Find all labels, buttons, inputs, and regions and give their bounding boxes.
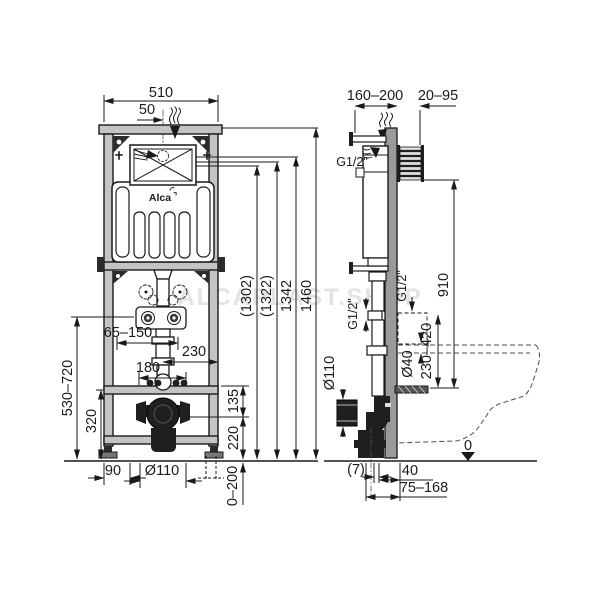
dim-o40: Ø40 bbox=[400, 350, 416, 377]
installation-frame-drawing: ALCAPLAST.SHOP Alca bbox=[0, 0, 600, 600]
pipe-clip bbox=[97, 257, 104, 272]
dim-160-200: 160–200 bbox=[347, 88, 403, 104]
technical-drawing-page: ALCAPLAST.SHOP Alca bbox=[0, 0, 600, 600]
frame-right-post bbox=[209, 134, 218, 446]
dim-50: 50 bbox=[139, 102, 155, 118]
corner-brace bbox=[194, 271, 209, 284]
dim-1322: (1322) bbox=[259, 275, 275, 317]
dim-1342: 1342 bbox=[279, 280, 295, 312]
front-view: Alca bbox=[97, 107, 225, 458]
dim-180: 180 bbox=[136, 360, 160, 376]
dim-1460: 1460 bbox=[299, 280, 315, 312]
dim-g12-right: G1/2" bbox=[395, 270, 409, 302]
alca-logo: Alca bbox=[149, 192, 171, 204]
dim-90: 90 bbox=[105, 463, 121, 479]
frame-mid-rail bbox=[104, 262, 218, 270]
frame-top-rail bbox=[99, 125, 222, 134]
wall-bracket-block bbox=[397, 145, 424, 182]
dim-910: 910 bbox=[436, 273, 452, 297]
dim-20-95: 20–95 bbox=[418, 88, 458, 104]
dim-510: 510 bbox=[149, 85, 173, 101]
dim-g12-top: G1/2" bbox=[336, 155, 368, 169]
dim-zero: 0 bbox=[464, 438, 472, 454]
dim-o110-front: Ø110 bbox=[145, 463, 179, 479]
waste-outlet bbox=[151, 428, 176, 452]
corner-brace bbox=[113, 136, 130, 153]
dim-230: 230 bbox=[182, 344, 206, 360]
dim-230-420: 230–420 bbox=[419, 323, 435, 379]
bowl-bracket bbox=[395, 386, 428, 393]
dim-40: 40 bbox=[402, 463, 418, 479]
corner-brace bbox=[113, 271, 128, 284]
dim-320: 320 bbox=[84, 409, 100, 433]
dim-65-150: 65–150 bbox=[104, 325, 152, 341]
frame-left-post bbox=[104, 134, 113, 446]
dim-0-200: 0–200 bbox=[225, 466, 241, 506]
dim-g12-left: G1/2" bbox=[346, 298, 360, 330]
dim-7: (7) bbox=[347, 462, 365, 478]
water-inlet-icon bbox=[170, 107, 181, 124]
waste-pipe-section bbox=[337, 400, 357, 426]
dim-o110-side: Ø110 bbox=[322, 356, 338, 390]
dim-75-168: 75–168 bbox=[400, 480, 448, 496]
dim-1302: (1302) bbox=[239, 275, 255, 317]
water-inlet-icon bbox=[380, 112, 393, 127]
dim-135: 135 bbox=[226, 389, 242, 413]
inspection-opening bbox=[116, 145, 210, 185]
dim-530-720: 530–720 bbox=[60, 360, 76, 416]
dim-220: 220 bbox=[226, 426, 242, 450]
pipe-clip bbox=[218, 257, 225, 272]
